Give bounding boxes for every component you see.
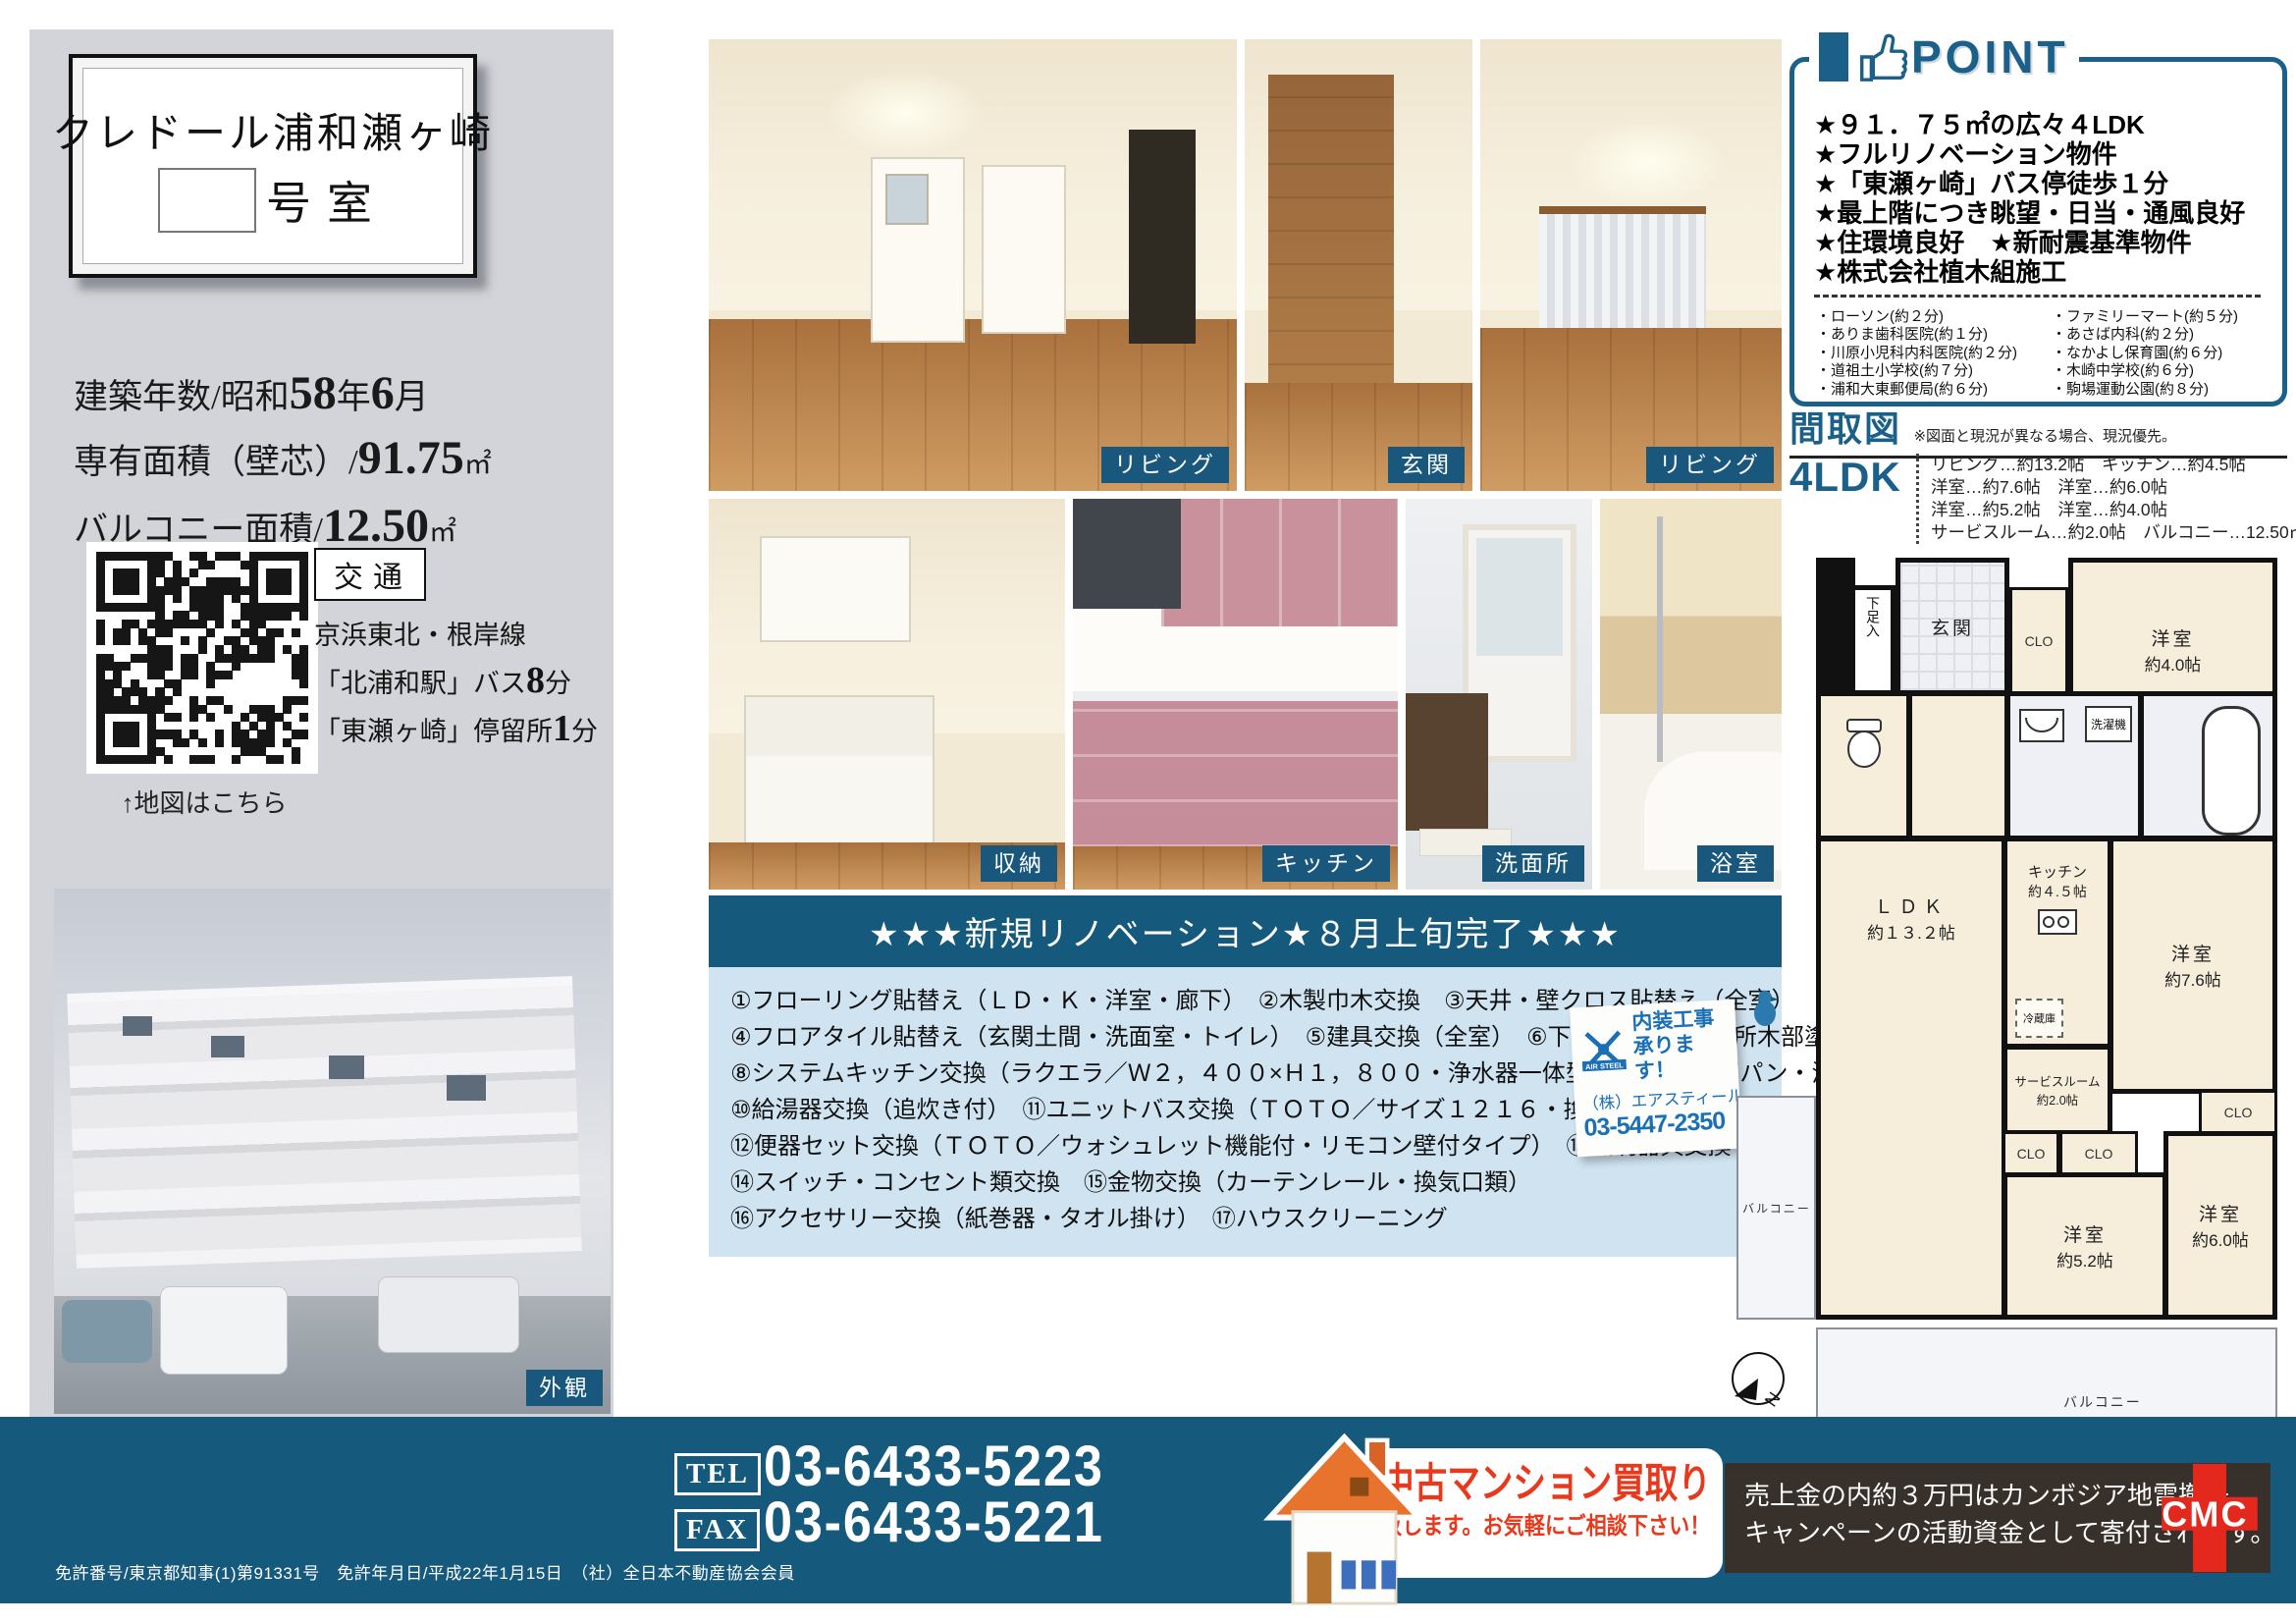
room-size-line: リビング…約13.2帖 キッチン…約4.5帖 [1931,454,2296,476]
madori-note: ※図面と現況が異なる場合、現況優先。 [1913,428,2176,445]
point-divider [1814,295,2261,298]
photo-genkan: 玄関 [1245,39,1472,491]
door [982,165,1066,334]
room-suffix: 号室 [266,168,388,233]
property-title-card: クレドール浦和瀬ヶ崎 号室 [69,54,477,278]
facility-item: ・ありま歯科医院(約１分) [1816,326,2052,344]
house-window [1362,1560,1376,1589]
point-title: POINT [1911,30,2069,83]
photo-kitchen: キッチン [1073,499,1398,890]
fp-closet: CLO [2009,587,2068,695]
license-text: 免許番号/東京都知事(1)第91331号 免許年月日/平成22年1月15日 （社… [55,1559,795,1584]
fax-label: FAX [674,1509,760,1551]
fp-fridge: 冷蔵庫 [2015,999,2063,1038]
point-item: ★９１．７５㎡の広々４LDK [1814,110,2275,139]
mirror [1476,538,1563,656]
airsteel-brand: AIR STEEL [1585,1060,1625,1071]
cmc-logo-text: CMC [2162,1493,2248,1534]
access-station: 「北浦和駅」バス8分 [314,658,609,706]
house-window [1342,1560,1357,1589]
house-icon [1258,1426,1430,1612]
door [871,157,965,343]
photo-living-2: リビング [1480,39,1782,491]
madori-heading: 間取図 [1789,408,1901,449]
photo-living-1: リビング [709,39,1237,491]
house-door [1308,1552,1332,1604]
facility-item: ・浦和大東郵便局(約６分) [1816,381,2052,399]
fp-washer: 洗濯機 [2085,706,2132,742]
room-number-box [158,168,256,233]
room-number-line: 号室 [158,168,388,233]
property-title-inner: クレドール浦和瀬ヶ崎 号室 [82,68,463,264]
vanity-cabinet [1406,693,1488,831]
lower-pink-cabinets [1073,700,1398,847]
qr-caption: ↑地図はこちら [96,784,312,820]
stove-icon [2038,909,2077,935]
access-busstop: 「東瀬ヶ崎」停留所1分 [314,706,609,754]
building-window [211,1036,244,1057]
cmc-logo: CMC [2158,1459,2262,1577]
compass-icon: N [1723,1347,1795,1420]
photo-exterior: 外観 [54,889,611,1414]
photo-caption: 収納 [981,845,1057,882]
photo-caption: キッチン [1262,845,1390,882]
airsteel-line2: 承ります！ [1632,1030,1731,1084]
airsteel-header: AIR STEEL 内装工事 承ります！ [1577,1005,1731,1087]
fp-closet: CLO [2002,1131,2059,1176]
fp-bedroom-6_0: 洋室 約6.0帖 [2163,1131,2277,1320]
floor-plan: 下足入 玄関 CLO 洋室 約4.0帖 洗濯機 [1723,546,2294,1528]
facility-item: ・駒場運動公園(約８分) [2052,381,2287,399]
photo-storage: 収納 [709,499,1065,890]
thumbs-up-icon [1854,28,1911,85]
upper-cabinet [760,536,911,642]
sink-icon [2018,708,2065,743]
building-window [447,1075,486,1101]
toilet-icon [1842,716,1887,771]
car [62,1300,152,1363]
fp-toilet [1816,691,1911,840]
airsteel-sticker: AIR STEEL 内装工事 承ります！ （株）エアスティール 03-5447-… [1570,1000,1742,1158]
exterior-caption: 外観 [526,1370,603,1406]
building-window [329,1056,364,1079]
bathtub-icon [2202,706,2261,836]
doorway-opening [1129,130,1196,344]
room-size-line: 洋室…約5.2帖 洋室…約4.0帖 [1931,499,2296,521]
exclusive-area-line: 専有面積（壁芯）/91.75㎡ [74,428,604,496]
point-items: ★９１．７５㎡の広々４LDK ★フルリノベーション物件 ★「東瀬ヶ崎」バス停徒歩… [1814,110,2275,287]
door-window [885,174,929,225]
building-name: クレドール浦和瀬ヶ崎 [52,100,494,160]
fp-closet: CLO [2059,1131,2138,1176]
facility-item: ・ローソン(約２分) [1816,308,2052,326]
fax-number: 03-6433-5221 [764,1489,1104,1555]
ceiling-light [827,69,984,157]
fp-bedroom-7_6: 洋室 約7.6帖 [2109,837,2277,1094]
point-item: ★最上階につき眺望・日当・通風良好 [1814,198,2275,228]
layout-type: 4LDK [1789,454,1901,501]
fp-genkan: 玄関 [1896,558,2009,695]
photo-caption: リビング [1646,447,1774,483]
fp-ldk: ＬＤＫ 約１３.２帖 [1816,837,2006,1320]
madori-heading-row: 間取図 ※図面と現況が異なる場合、現況優先。 [1789,401,2287,459]
point-item: ★住環境良好 ★新耐震基準物件 [1814,228,2275,257]
point-chip [1819,32,1848,81]
fp-service-room: サービスルーム 約2.0帖 [2002,1045,2112,1135]
fp-bath [2139,691,2277,840]
fp-closet: CLO [2199,1090,2277,1135]
wood-wall-panel [1268,75,1394,399]
facility-item: ・ファミリーマート(約５分) [2052,308,2287,326]
point-header: POINT [1809,22,2079,92]
roof-window [1350,1478,1368,1496]
fp-balcony-left: バルコニー [1736,1096,1816,1320]
fp-bedroom-5_2: 洋室 約5.2帖 [2002,1172,2167,1320]
facility-item: ・木崎中学校(約６分) [2052,362,2287,380]
access-railline: 京浜東北・根岸線 [314,613,609,658]
renovation-line: ⑯アクセサリー交換（紙巻器・タオル掛け） ⑰ハウスクリーニング [730,1201,1760,1237]
point-item: ★株式会社植木組施工 [1814,257,2275,287]
facilities-right-column: ・ファミリーマート(約５分) ・あさば内科(約２分) ・なかよし保育園(約６分)… [2052,308,2287,399]
tel-label: TEL [674,1453,761,1495]
car [378,1276,519,1353]
flyer-page: クレドール浦和瀬ヶ崎 号室 建築年数/昭和58年6月 専有面積（壁芯）/91.7… [0,0,2296,1624]
airsteel-line1: 内装工事 [1631,1005,1729,1035]
room-size-line: サービスルーム…約2.0帖 バルコニー…12.50㎡ [1931,521,2296,544]
fp-washroom: 洗濯機 [2005,691,2143,840]
built-date-line: 建築年数/昭和58年6月 [74,363,604,428]
qr-pattern [96,552,308,764]
house-window [1381,1560,1396,1589]
fp-shoe-closet: 下足入 [1850,585,1896,695]
photo-caption: 洗面所 [1482,845,1584,882]
facilities-left-column: ・ローソン(約２分) ・ありま歯科医院(約１分) ・川原小児科内科医院(約２分)… [1816,308,2052,399]
access-section: 交通 京浜東北・根岸線 「北浦和駅」バス8分 「東瀬ヶ崎」停留所1分 [314,548,609,754]
renovation-line: ⑭スイッチ・コンセント類交換 ⑮金物交換（カーテンレール・換気口類） [730,1164,1760,1201]
point-item: ★フルリノベーション物件 [1814,139,2275,169]
room-size-list: リビング…約13.2帖 キッチン…約4.5帖 洋室…約7.6帖 洋室…約6.0帖… [1916,454,2296,544]
map-qr-code [86,542,318,774]
photo-caption: リビング [1101,447,1229,483]
upper-pink-cabinets [1161,499,1398,626]
renovation-title: ★★★新規リノベーション★８月上旬完了★★★ [709,895,1782,967]
range-hood [1073,499,1181,609]
photo-caption: 玄関 [1388,447,1465,483]
room-size-line: 洋室…約7.6帖 洋室…約6.0帖 [1931,476,2296,499]
car [160,1286,288,1375]
point-item: ★「東瀬ヶ崎」バス停徒歩１分 [1814,169,2275,198]
photo-washroom: 洗面所 [1406,499,1592,890]
curtained-window [1539,206,1706,342]
propeller-icon: AIR STEEL [1578,1022,1629,1075]
facility-item: ・道祖土小学校(約７分) [1816,362,2052,380]
facility-item: ・川原小児科内科医院(約２分) [1816,345,2052,362]
shower-bar [1657,516,1663,762]
fp-shoe-label: 下足入 [1863,596,1883,637]
fp-hall [1907,691,2009,840]
ceiling-light [1569,118,1726,206]
building-window [123,1016,152,1036]
access-heading: 交通 [314,548,426,601]
counter-top [1073,691,1398,701]
facility-item: ・なかよし保育園(約６分) [2052,345,2287,362]
property-info: 建築年数/昭和58年6月 専有面積（壁芯）/91.75㎡ バルコニー面積/12.… [74,363,604,564]
wall [1816,558,1855,695]
facility-item: ・あさば内科(約２分) [2052,326,2287,344]
fp-genkan-label: 玄関 [1900,614,2004,640]
fp-kitchen: キッチン 約４.５帖 冷蔵庫 [2002,837,2112,1049]
